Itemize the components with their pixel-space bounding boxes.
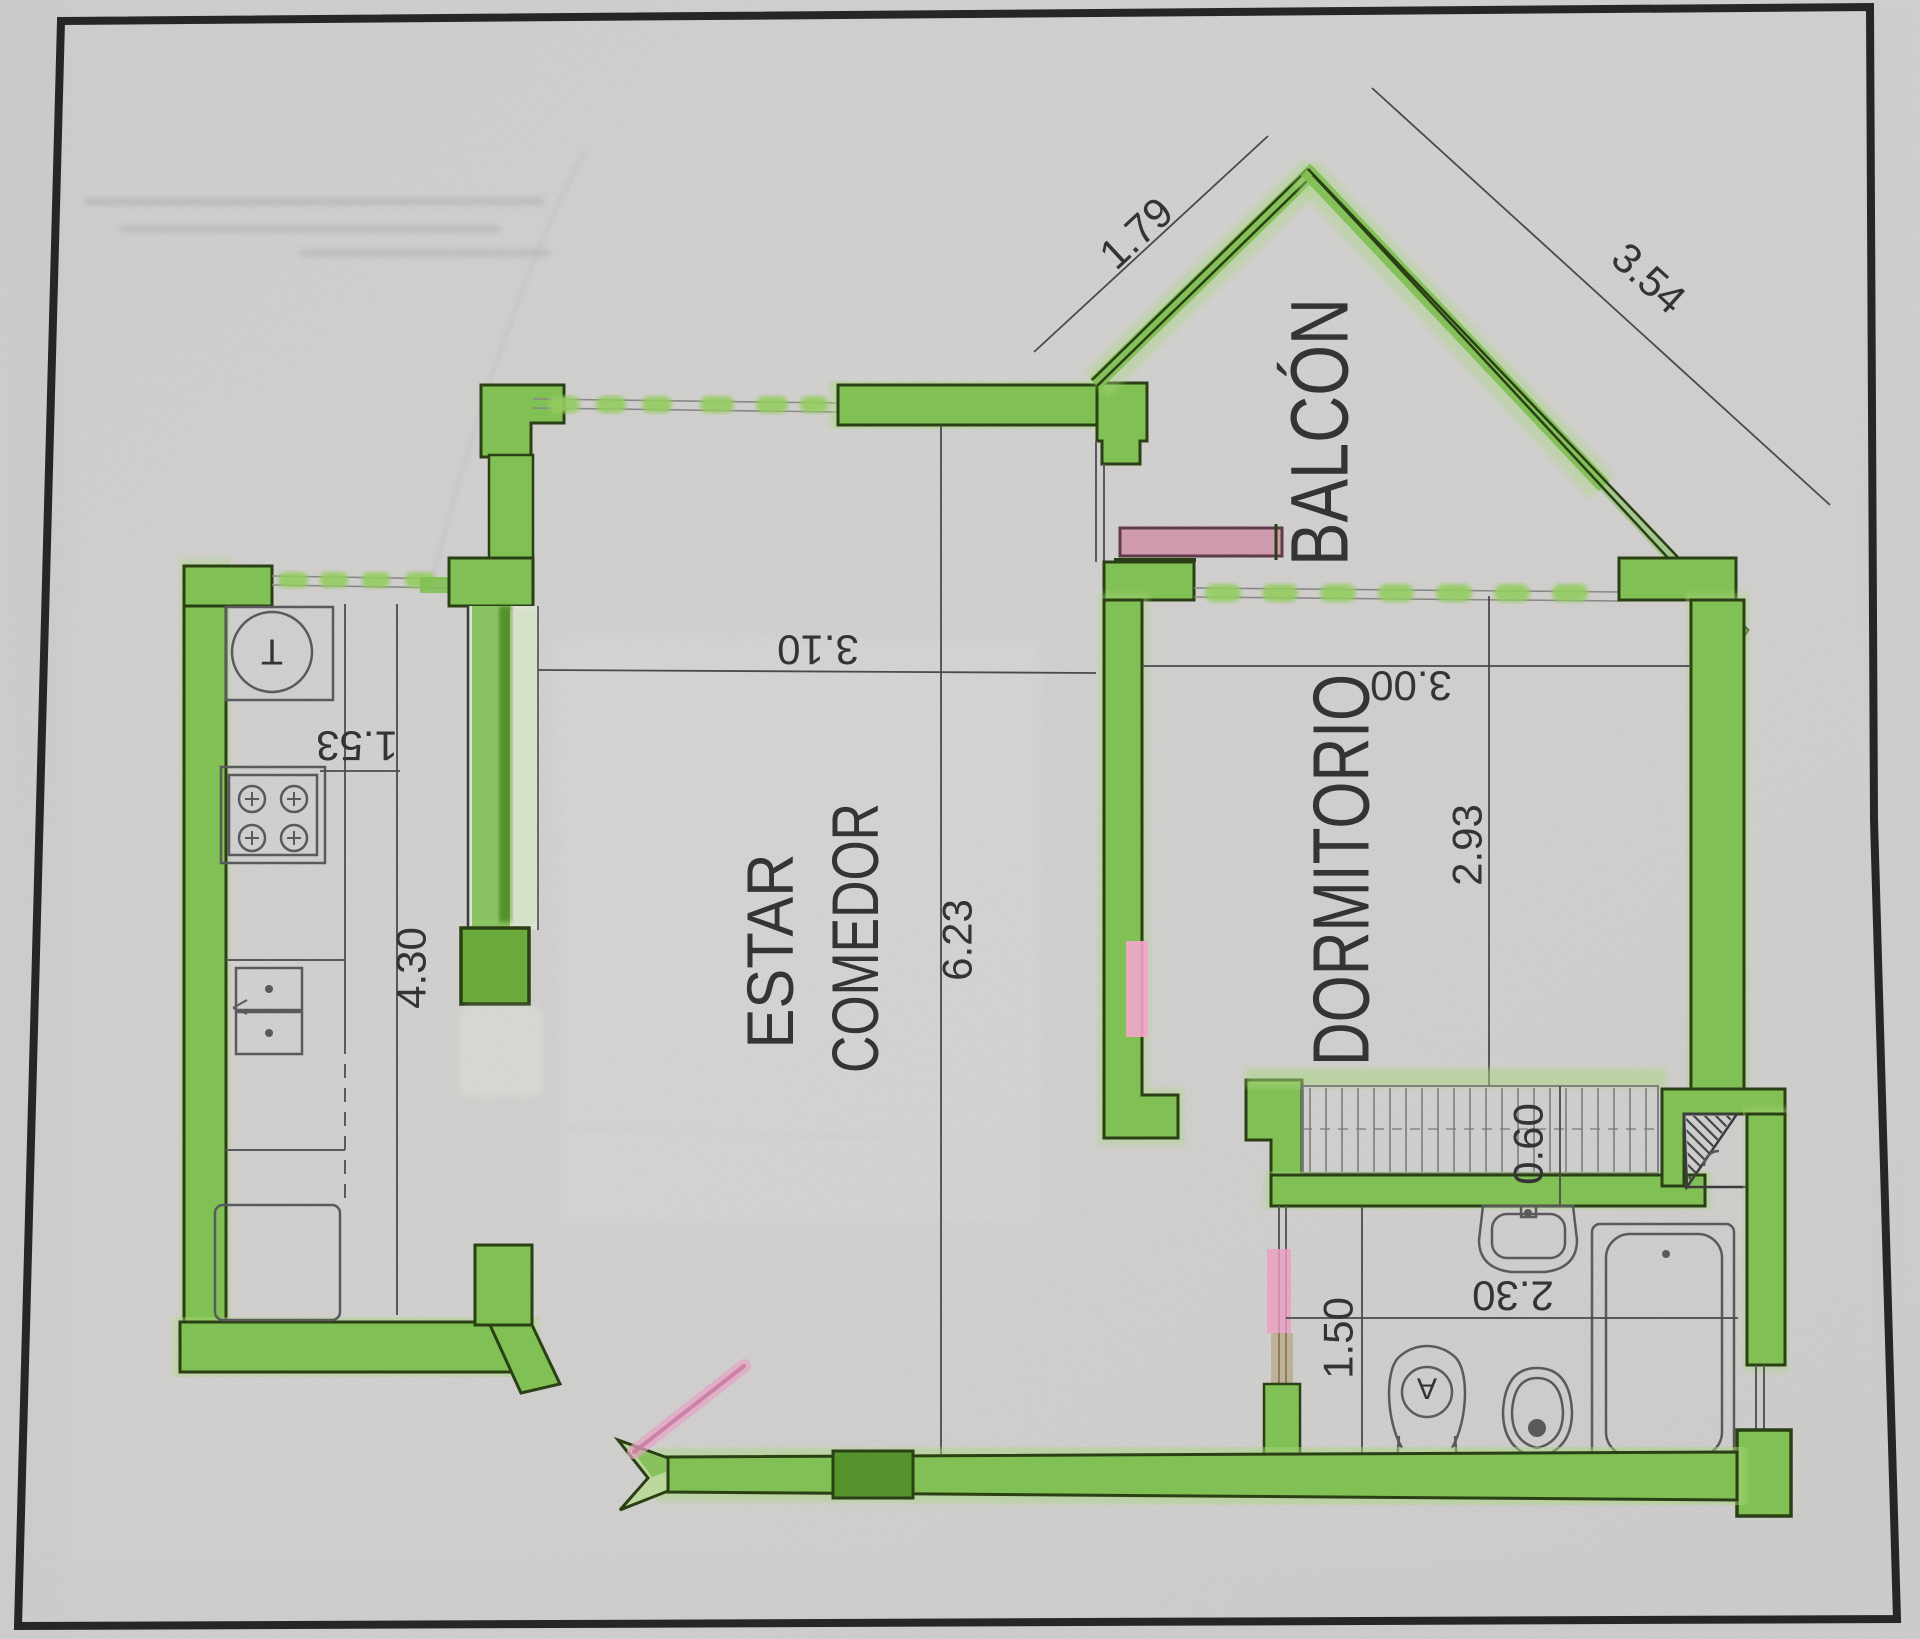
svg-text:T: T xyxy=(261,632,283,673)
svg-text:6.23: 6.23 xyxy=(934,899,981,981)
svg-text:ESTAR: ESTAR xyxy=(733,854,807,1049)
svg-text:2.93: 2.93 xyxy=(1444,804,1491,886)
svg-text:COMEDOR: COMEDOR xyxy=(818,803,892,1073)
svg-text:1.50: 1.50 xyxy=(1315,1297,1362,1379)
svg-text:1.53: 1.53 xyxy=(316,723,398,770)
svg-text:DORMITORIO: DORMITORIO xyxy=(1297,674,1386,1066)
svg-text:3.10: 3.10 xyxy=(777,627,859,674)
svg-text:4.30: 4.30 xyxy=(388,927,435,1009)
svg-text:2.30: 2.30 xyxy=(1472,1273,1554,1320)
svg-text:A: A xyxy=(1417,1372,1437,1405)
svg-text:BALCÓN: BALCÓN xyxy=(1275,298,1366,566)
svg-text:0.60: 0.60 xyxy=(1505,1103,1552,1185)
